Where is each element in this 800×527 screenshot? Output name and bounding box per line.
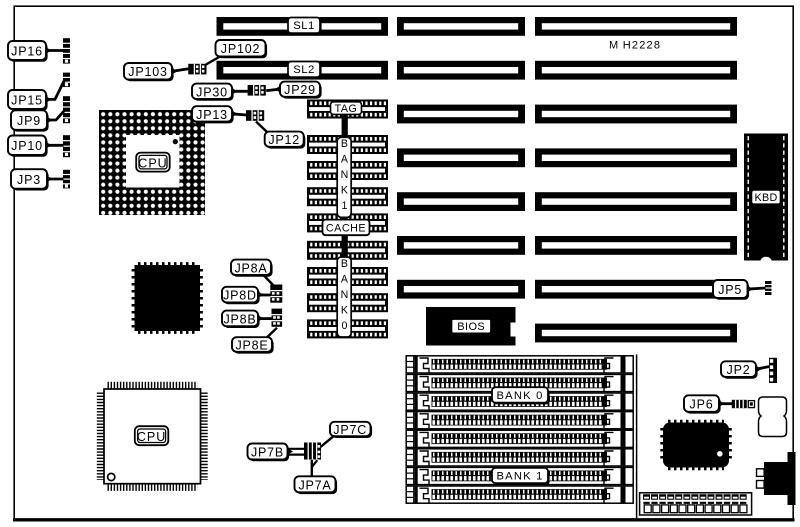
svg-text:JP7A: JP7A (298, 478, 331, 492)
svg-text:CACHE: CACHE (326, 222, 366, 234)
svg-text:JP3: JP3 (17, 173, 41, 187)
svg-text:JP102: JP102 (221, 42, 260, 56)
svg-text:BIOS: BIOS (457, 321, 485, 333)
svg-text:B: B (341, 138, 348, 150)
svg-text:SL1: SL1 (293, 20, 315, 32)
svg-text:M H2228: M H2228 (609, 40, 661, 52)
svg-text:JP8B: JP8B (223, 312, 256, 326)
svg-text:JP8E: JP8E (235, 339, 268, 353)
svg-text:JP12: JP12 (268, 133, 300, 147)
svg-text:JP8D: JP8D (223, 289, 257, 303)
svg-text:BANK 0: BANK 0 (497, 390, 544, 402)
svg-text:BANK 1: BANK 1 (497, 470, 544, 482)
svg-text:JP30: JP30 (196, 85, 228, 99)
svg-text:JP29: JP29 (284, 83, 316, 97)
svg-text:SL2: SL2 (293, 64, 315, 76)
svg-text:K: K (341, 185, 348, 197)
svg-text:JP9: JP9 (17, 114, 41, 128)
svg-text:JP15: JP15 (11, 94, 43, 108)
svg-text:B: B (341, 258, 348, 270)
svg-text:0: 0 (341, 320, 347, 332)
svg-text:JP7B: JP7B (251, 446, 284, 460)
svg-text:1: 1 (341, 200, 347, 212)
svg-text:JP103: JP103 (128, 65, 167, 79)
svg-text:N: N (341, 169, 349, 181)
svg-text:JP8A: JP8A (234, 261, 267, 275)
svg-text:JP7C: JP7C (333, 423, 367, 437)
svg-text:K: K (341, 305, 348, 317)
svg-text:A: A (341, 154, 349, 166)
svg-text:JP10: JP10 (11, 139, 43, 153)
svg-text:CPU: CPU (138, 157, 167, 171)
svg-text:JP5: JP5 (718, 283, 742, 297)
svg-text:JP2: JP2 (727, 363, 751, 377)
svg-text:JP6: JP6 (690, 398, 714, 412)
svg-text:JP13: JP13 (196, 108, 228, 122)
svg-text:KBD: KBD (754, 192, 777, 204)
svg-text:CPU: CPU (137, 430, 166, 444)
svg-text:A: A (341, 274, 349, 286)
svg-text:TAG: TAG (335, 103, 358, 115)
svg-text:JP16: JP16 (11, 45, 43, 59)
svg-text:N: N (341, 289, 349, 301)
